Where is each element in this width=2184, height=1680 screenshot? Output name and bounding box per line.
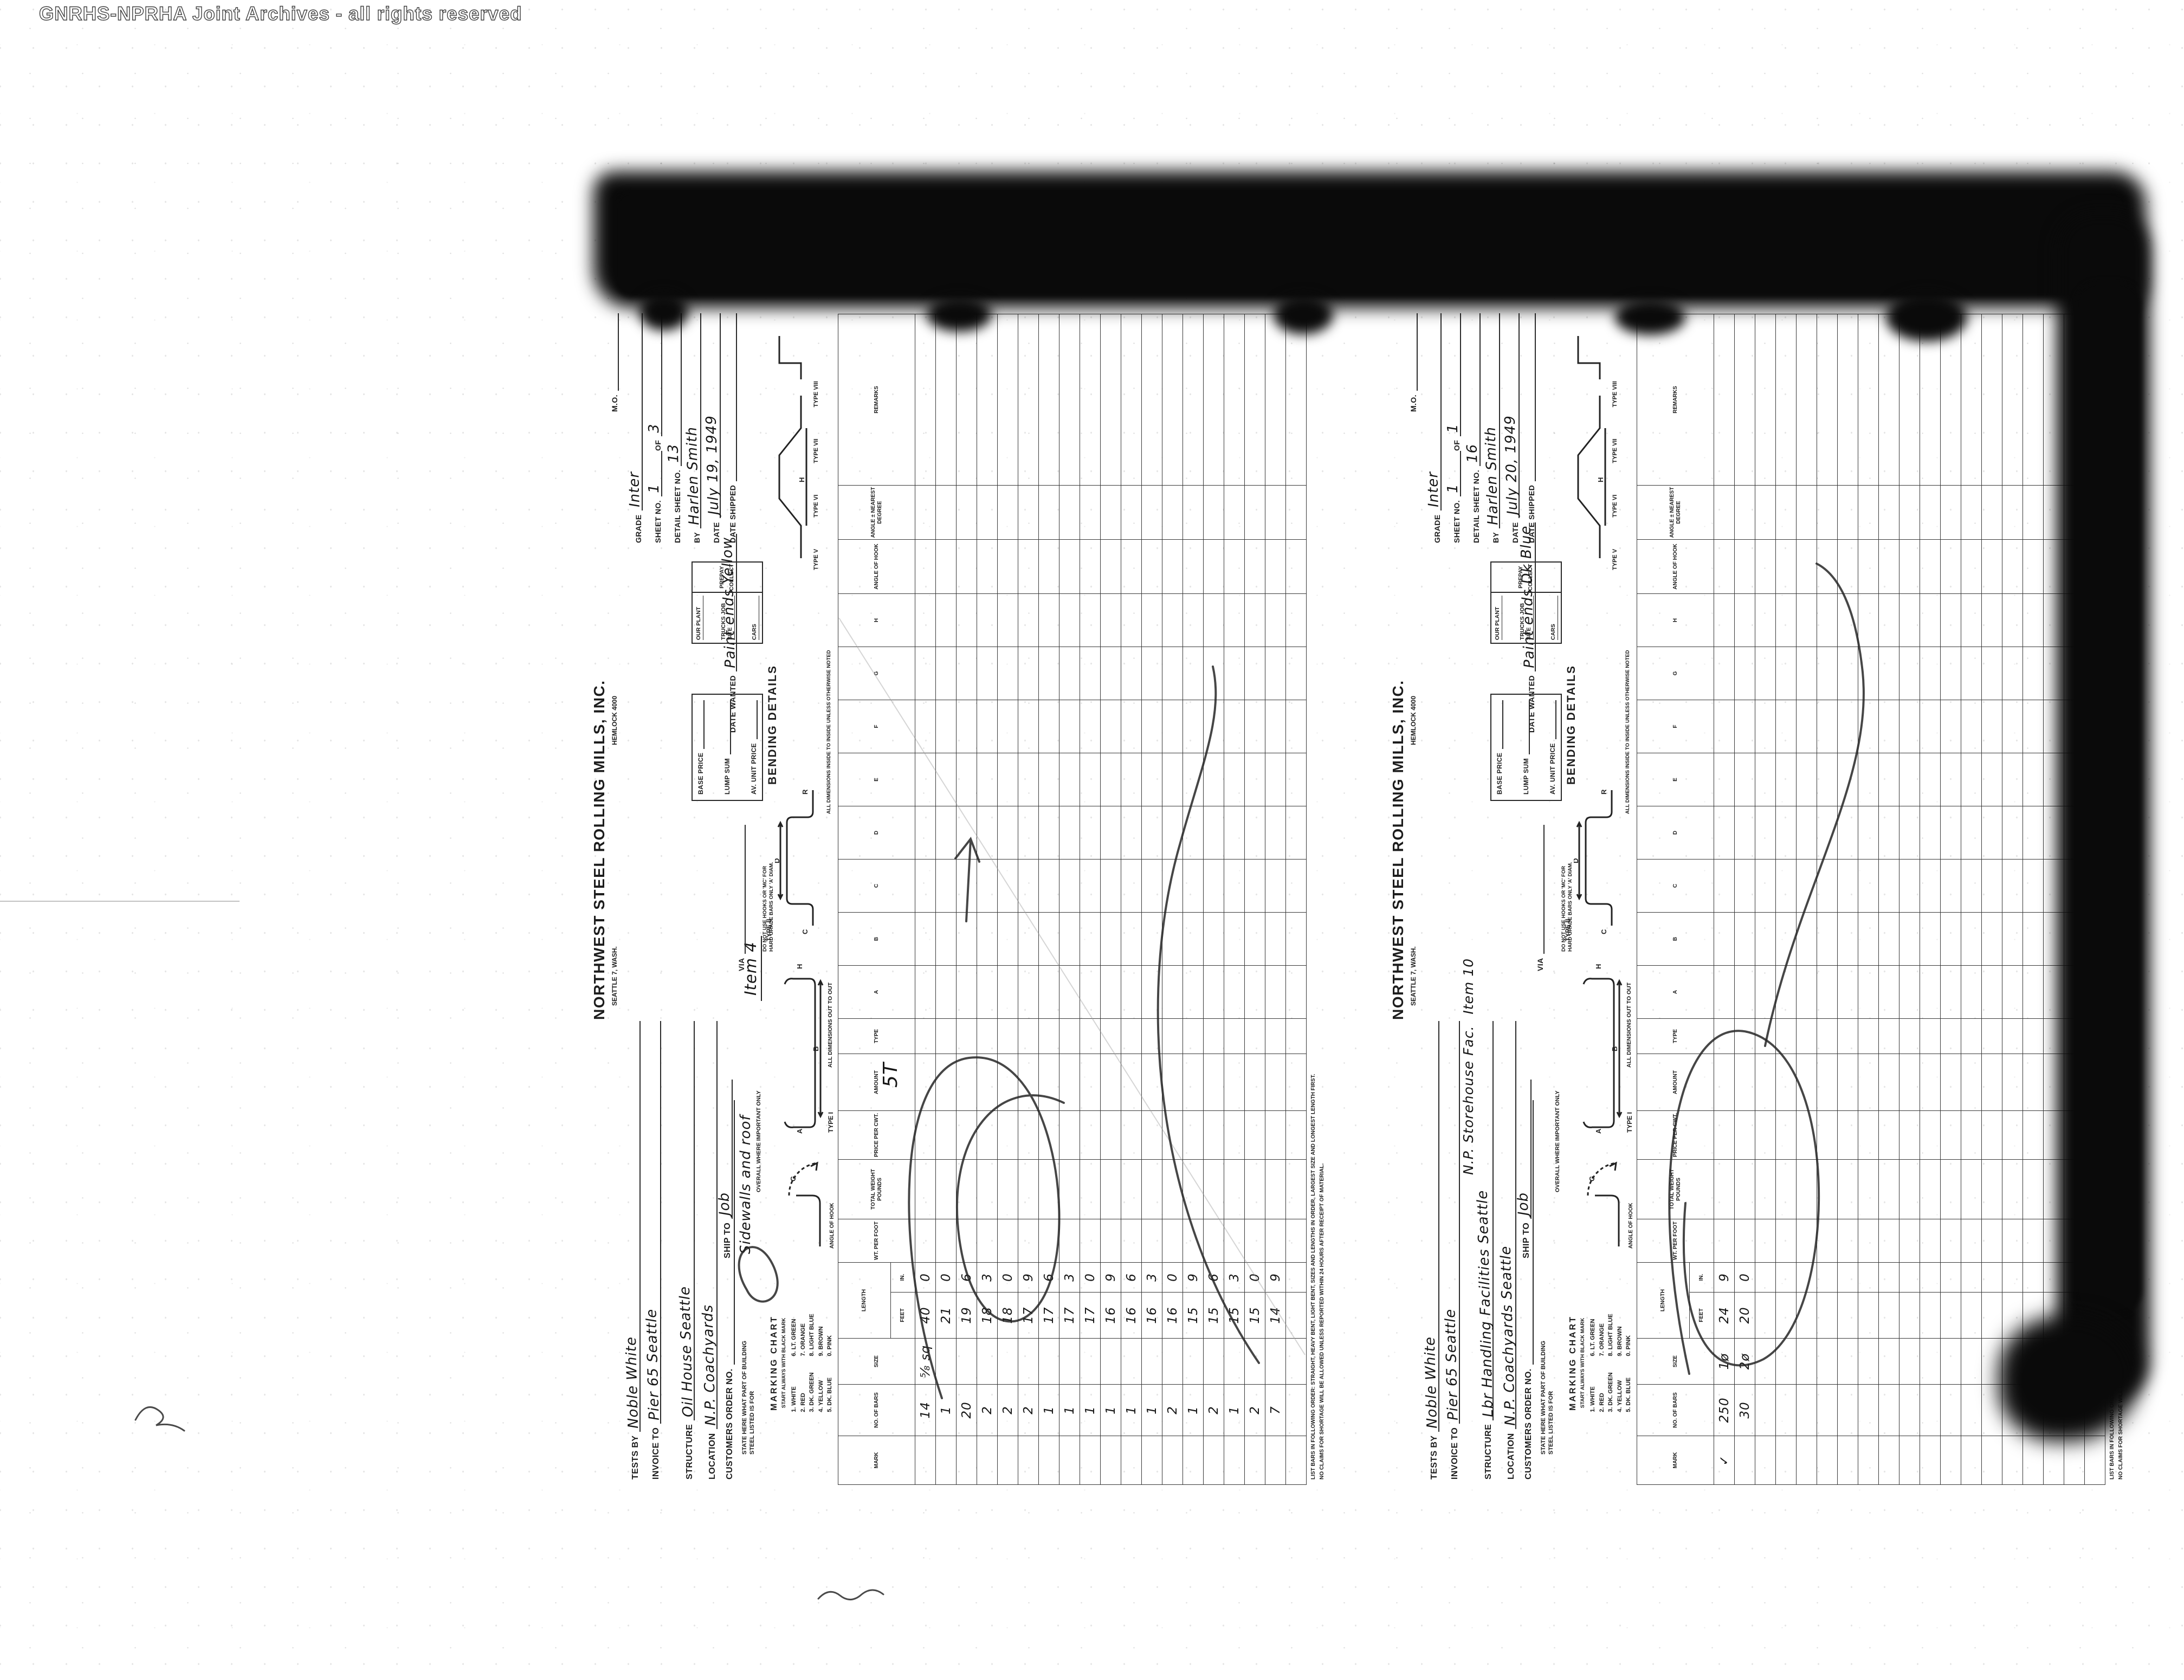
toner-smudge — [1274, 295, 1333, 334]
scanned-document-page: { "watermark": "GNRHS-NPRHA Joint Archiv… — [0, 0, 2184, 1680]
pencil-scribble — [1383, 313, 2142, 1485]
pencil-scribble — [584, 313, 1343, 1485]
archive-watermark: GNRHS-NPRHA Joint Archives - all rights … — [39, 3, 522, 25]
toner-smudge-right-core — [2075, 282, 2142, 1314]
margin-pencil-mark — [813, 1580, 894, 1612]
toner-smudge-top-core — [615, 191, 2127, 297]
crease-line — [0, 901, 240, 902]
bar-list-form-sheet16: NORTHWEST STEEL ROLLING MILLS, INC. SEAT… — [1383, 313, 2142, 1485]
form-rotated-content: NORTHWEST STEEL ROLLING MILLS, INC. SEAT… — [584, 313, 1343, 1485]
form-rotated-content: NORTHWEST STEEL ROLLING MILLS, INC. SEAT… — [1383, 313, 2142, 1485]
toner-smudge — [1615, 299, 1685, 335]
bar-list-form-sheet13: NORTHWEST STEEL ROLLING MILLS, INC. SEAT… — [584, 313, 1343, 1485]
toner-smudge — [639, 293, 688, 331]
toner-smudge — [927, 297, 992, 332]
toner-smudge — [1886, 293, 1967, 341]
margin-pencil-mark — [125, 1387, 195, 1442]
